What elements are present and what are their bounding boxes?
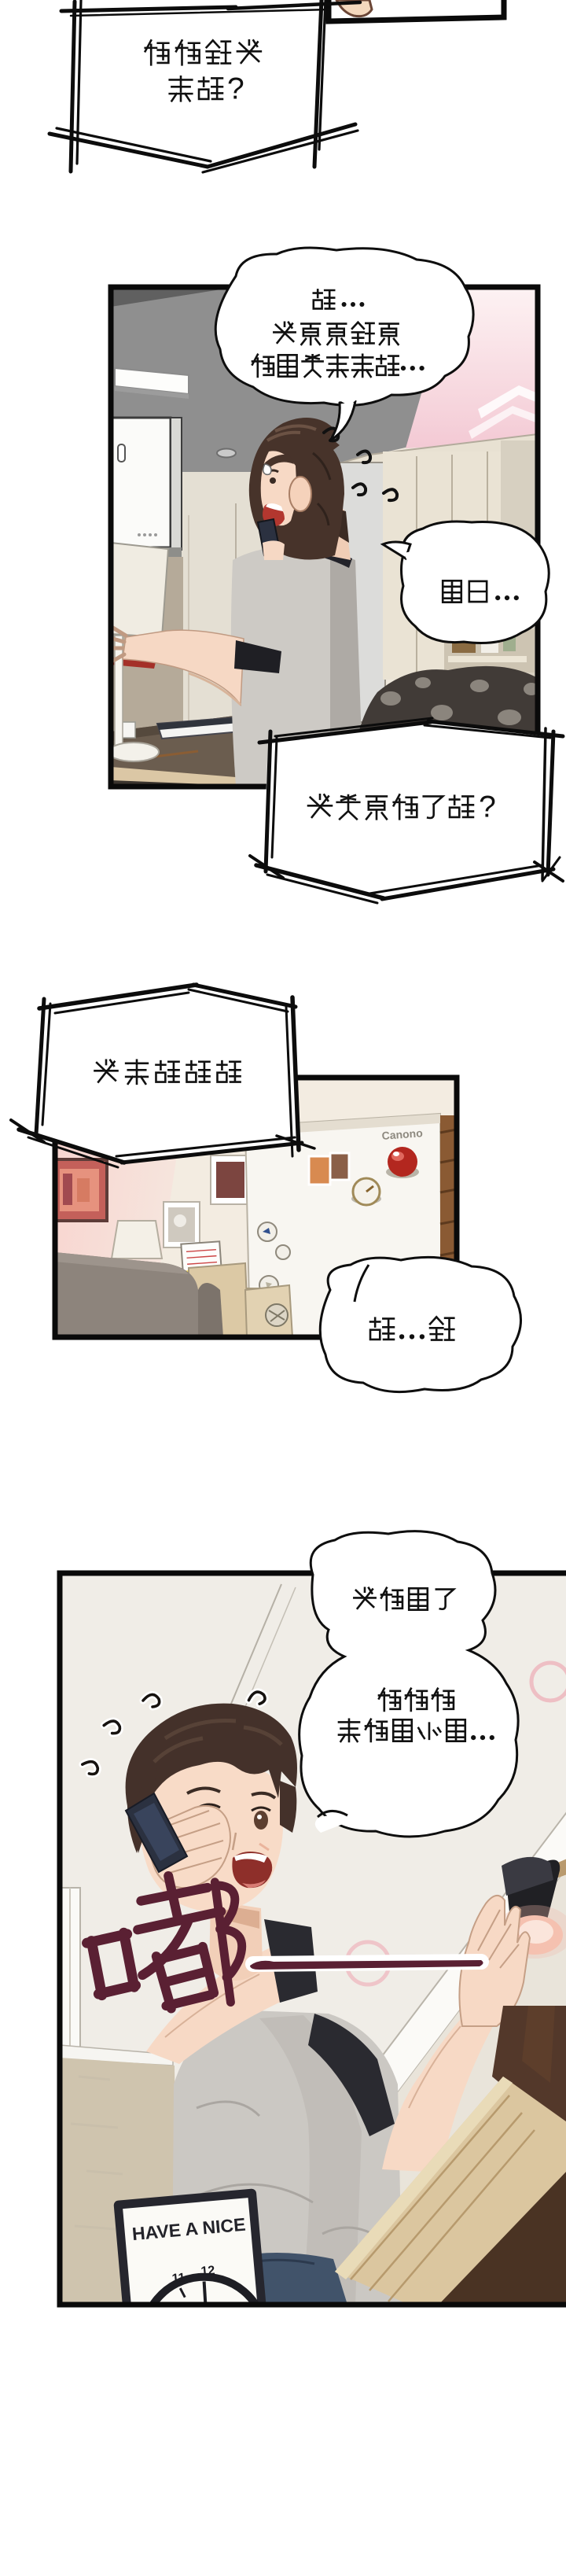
svg-text:12: 12 <box>200 2264 215 2278</box>
svg-text:11: 11 <box>171 2272 186 2286</box>
svg-text:?: ? <box>479 790 496 824</box>
svg-text:?: ? <box>227 72 244 106</box>
